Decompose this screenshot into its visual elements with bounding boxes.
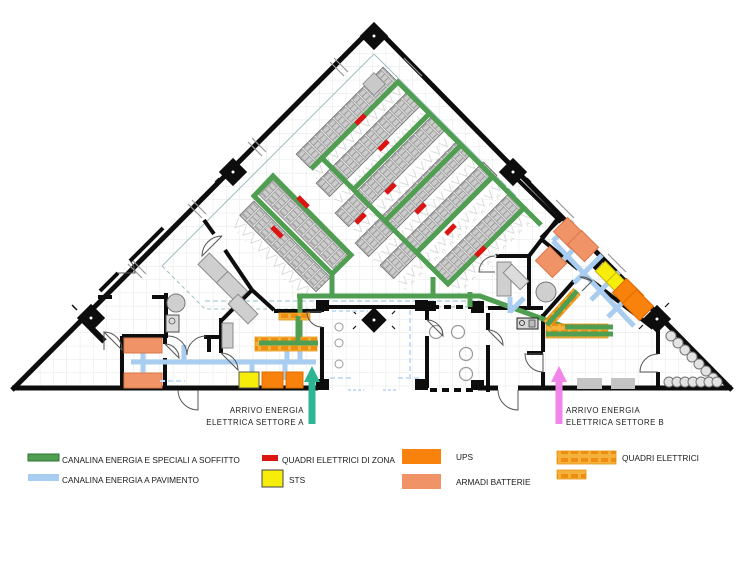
svg-text:ARMADI BATTERIE: ARMADI BATTERIE	[456, 477, 531, 487]
svg-text:QUADRI ELETTRICI DI ZONA: QUADRI ELETTRICI DI ZONA	[282, 455, 395, 465]
svg-text:CANALINA ENERGIA A PAVIMENTO: CANALINA ENERGIA A PAVIMENTO	[62, 475, 199, 485]
svg-text:STS: STS	[289, 475, 306, 485]
svg-text:UPS: UPS	[456, 452, 474, 462]
svg-text:ELETTRICA SETTORE B: ELETTRICA SETTORE B	[566, 418, 664, 427]
svg-text:ARRIVO ENERGIA: ARRIVO ENERGIA	[230, 406, 304, 415]
svg-text:QUADRI ELETTRICI: QUADRI ELETTRICI	[622, 453, 699, 463]
svg-text:CANALINA ENERGIA E SPECIALI A: CANALINA ENERGIA E SPECIALI A SOFFITTO	[62, 455, 240, 465]
svg-text:ARRIVO ENERGIA: ARRIVO ENERGIA	[566, 406, 640, 415]
svg-text:ELETTRICA SETTORE A: ELETTRICA SETTORE A	[206, 418, 304, 427]
